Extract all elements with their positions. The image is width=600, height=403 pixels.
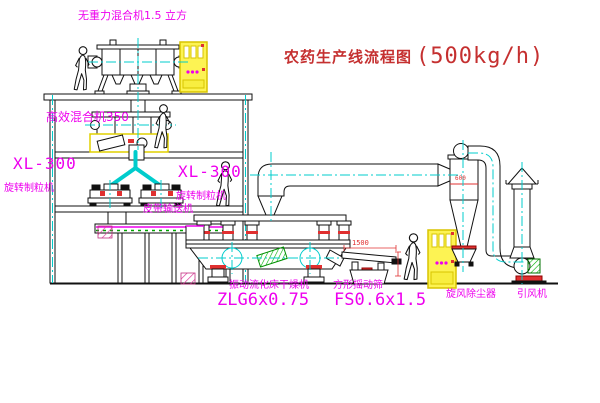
label-belt-conveyor: 皮带输送机	[143, 205, 193, 215]
dimension-sieve-length: 1500	[352, 240, 369, 247]
label-dryer-model: ZLG6x0.75	[217, 292, 309, 309]
label-granulator-left-model: XL-300	[13, 156, 77, 172]
cyclone-outlet-elbow	[454, 144, 469, 159]
control-cabinet-ground	[428, 230, 456, 288]
label-high-efficiency-mixer: 高效混合机350	[46, 111, 129, 123]
label-cyclone: 旋风除尘器	[446, 290, 496, 300]
label-gravity-free-mixer: 无重力混合机1.5 立方	[78, 10, 187, 21]
label-granulator-left-name: 旋转制粒机	[4, 184, 54, 194]
fluid-bed-dryer	[181, 215, 351, 284]
label-sieve-model: FS0.6x1.5	[334, 292, 426, 309]
person-figure-icon	[404, 234, 420, 280]
title-capacity: (500kg/h)	[416, 46, 544, 68]
granulator-discharge-pipe	[108, 212, 126, 225]
pesticide-production-line-diagram: 无重力混合机1.5 立方 农药生产线流程图 (500kg/h) 高效混合机350…	[0, 0, 600, 403]
label-fan: 引风机	[517, 290, 547, 300]
title-chinese: 农药生产线流程图	[284, 50, 412, 65]
diagram-title: 农药生产线流程图 (500kg/h)	[284, 46, 544, 68]
duct-funnel	[258, 196, 282, 215]
person-figure-icon	[74, 47, 89, 90]
dryer-foundation-hatch	[181, 273, 195, 284]
label-granulator-right-model: XL-300	[178, 164, 242, 180]
fan-motor	[528, 259, 540, 273]
exhaust-duct	[258, 164, 438, 215]
dimension-cyclone-diameter: 600	[455, 176, 466, 182]
label-granulator-right-name: 旋转制粒机	[176, 192, 226, 202]
control-cabinet-top	[180, 42, 207, 92]
dryer-feed-box	[186, 226, 204, 240]
foundation-hatch	[98, 226, 112, 238]
